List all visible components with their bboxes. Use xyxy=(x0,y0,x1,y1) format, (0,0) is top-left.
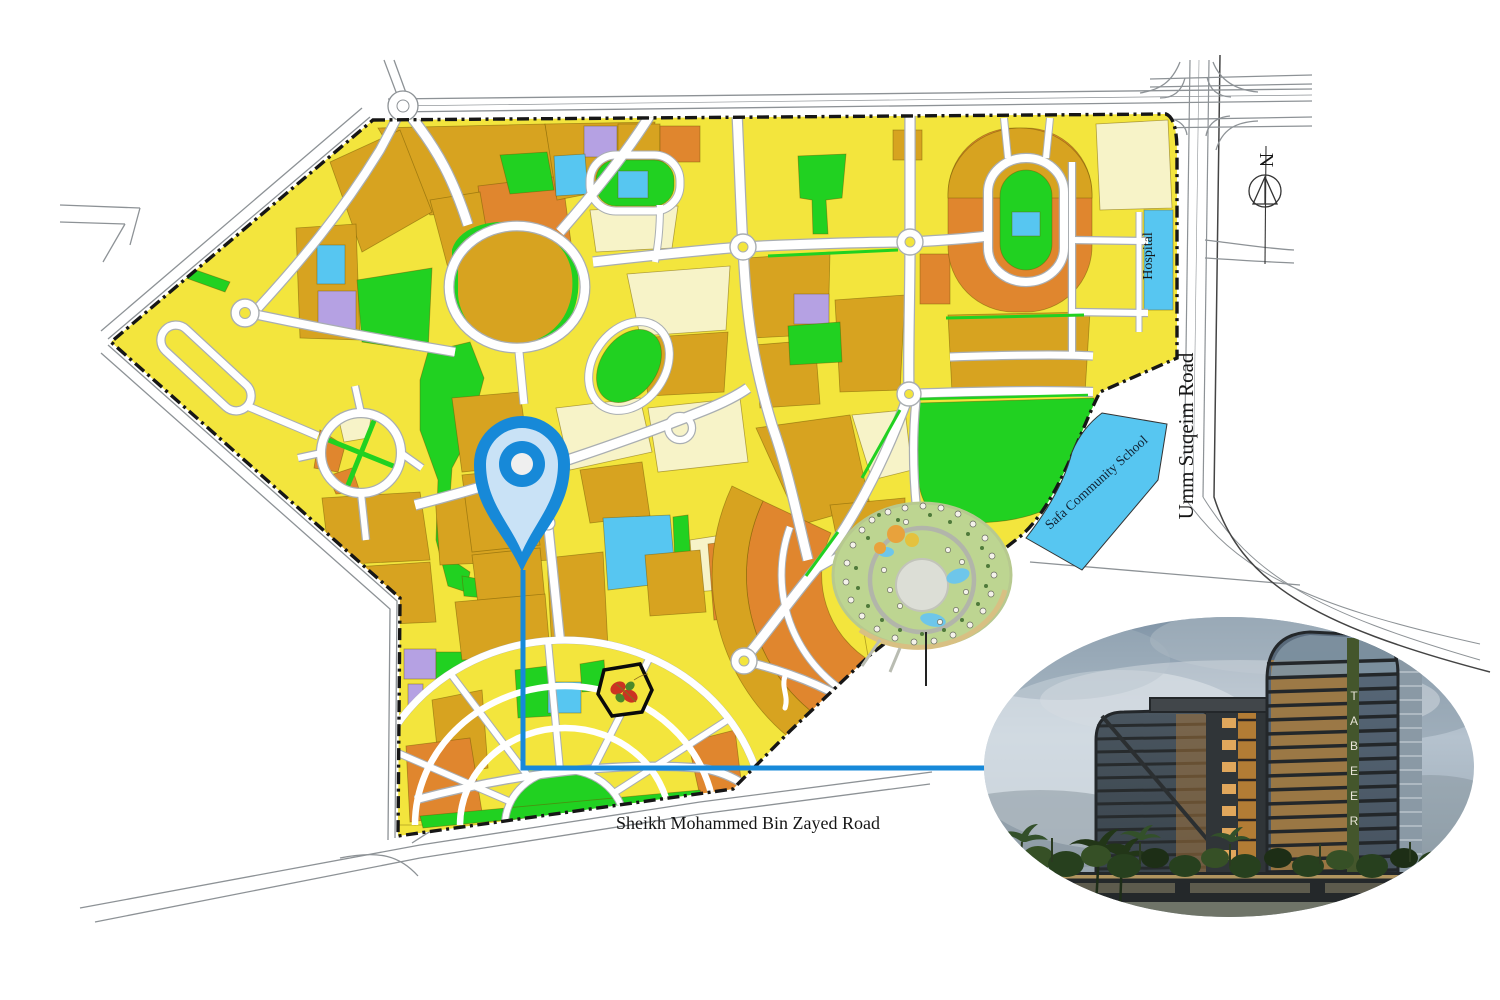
svg-text:B: B xyxy=(1350,739,1358,753)
svg-text:A: A xyxy=(1350,714,1358,728)
svg-text:E: E xyxy=(1350,764,1358,778)
svg-text:N: N xyxy=(1255,153,1277,167)
svg-text:R: R xyxy=(1350,814,1359,828)
svg-text:Sheikh Mohammed Bin Zayed Road: Sheikh Mohammed Bin Zayed Road xyxy=(616,813,880,833)
svg-text:E: E xyxy=(1350,789,1358,803)
svg-text:Umm Suqeim Road: Umm Suqeim Road xyxy=(1174,352,1198,519)
svg-text:T: T xyxy=(1350,689,1358,703)
svg-text:Hospital: Hospital xyxy=(1141,232,1156,280)
